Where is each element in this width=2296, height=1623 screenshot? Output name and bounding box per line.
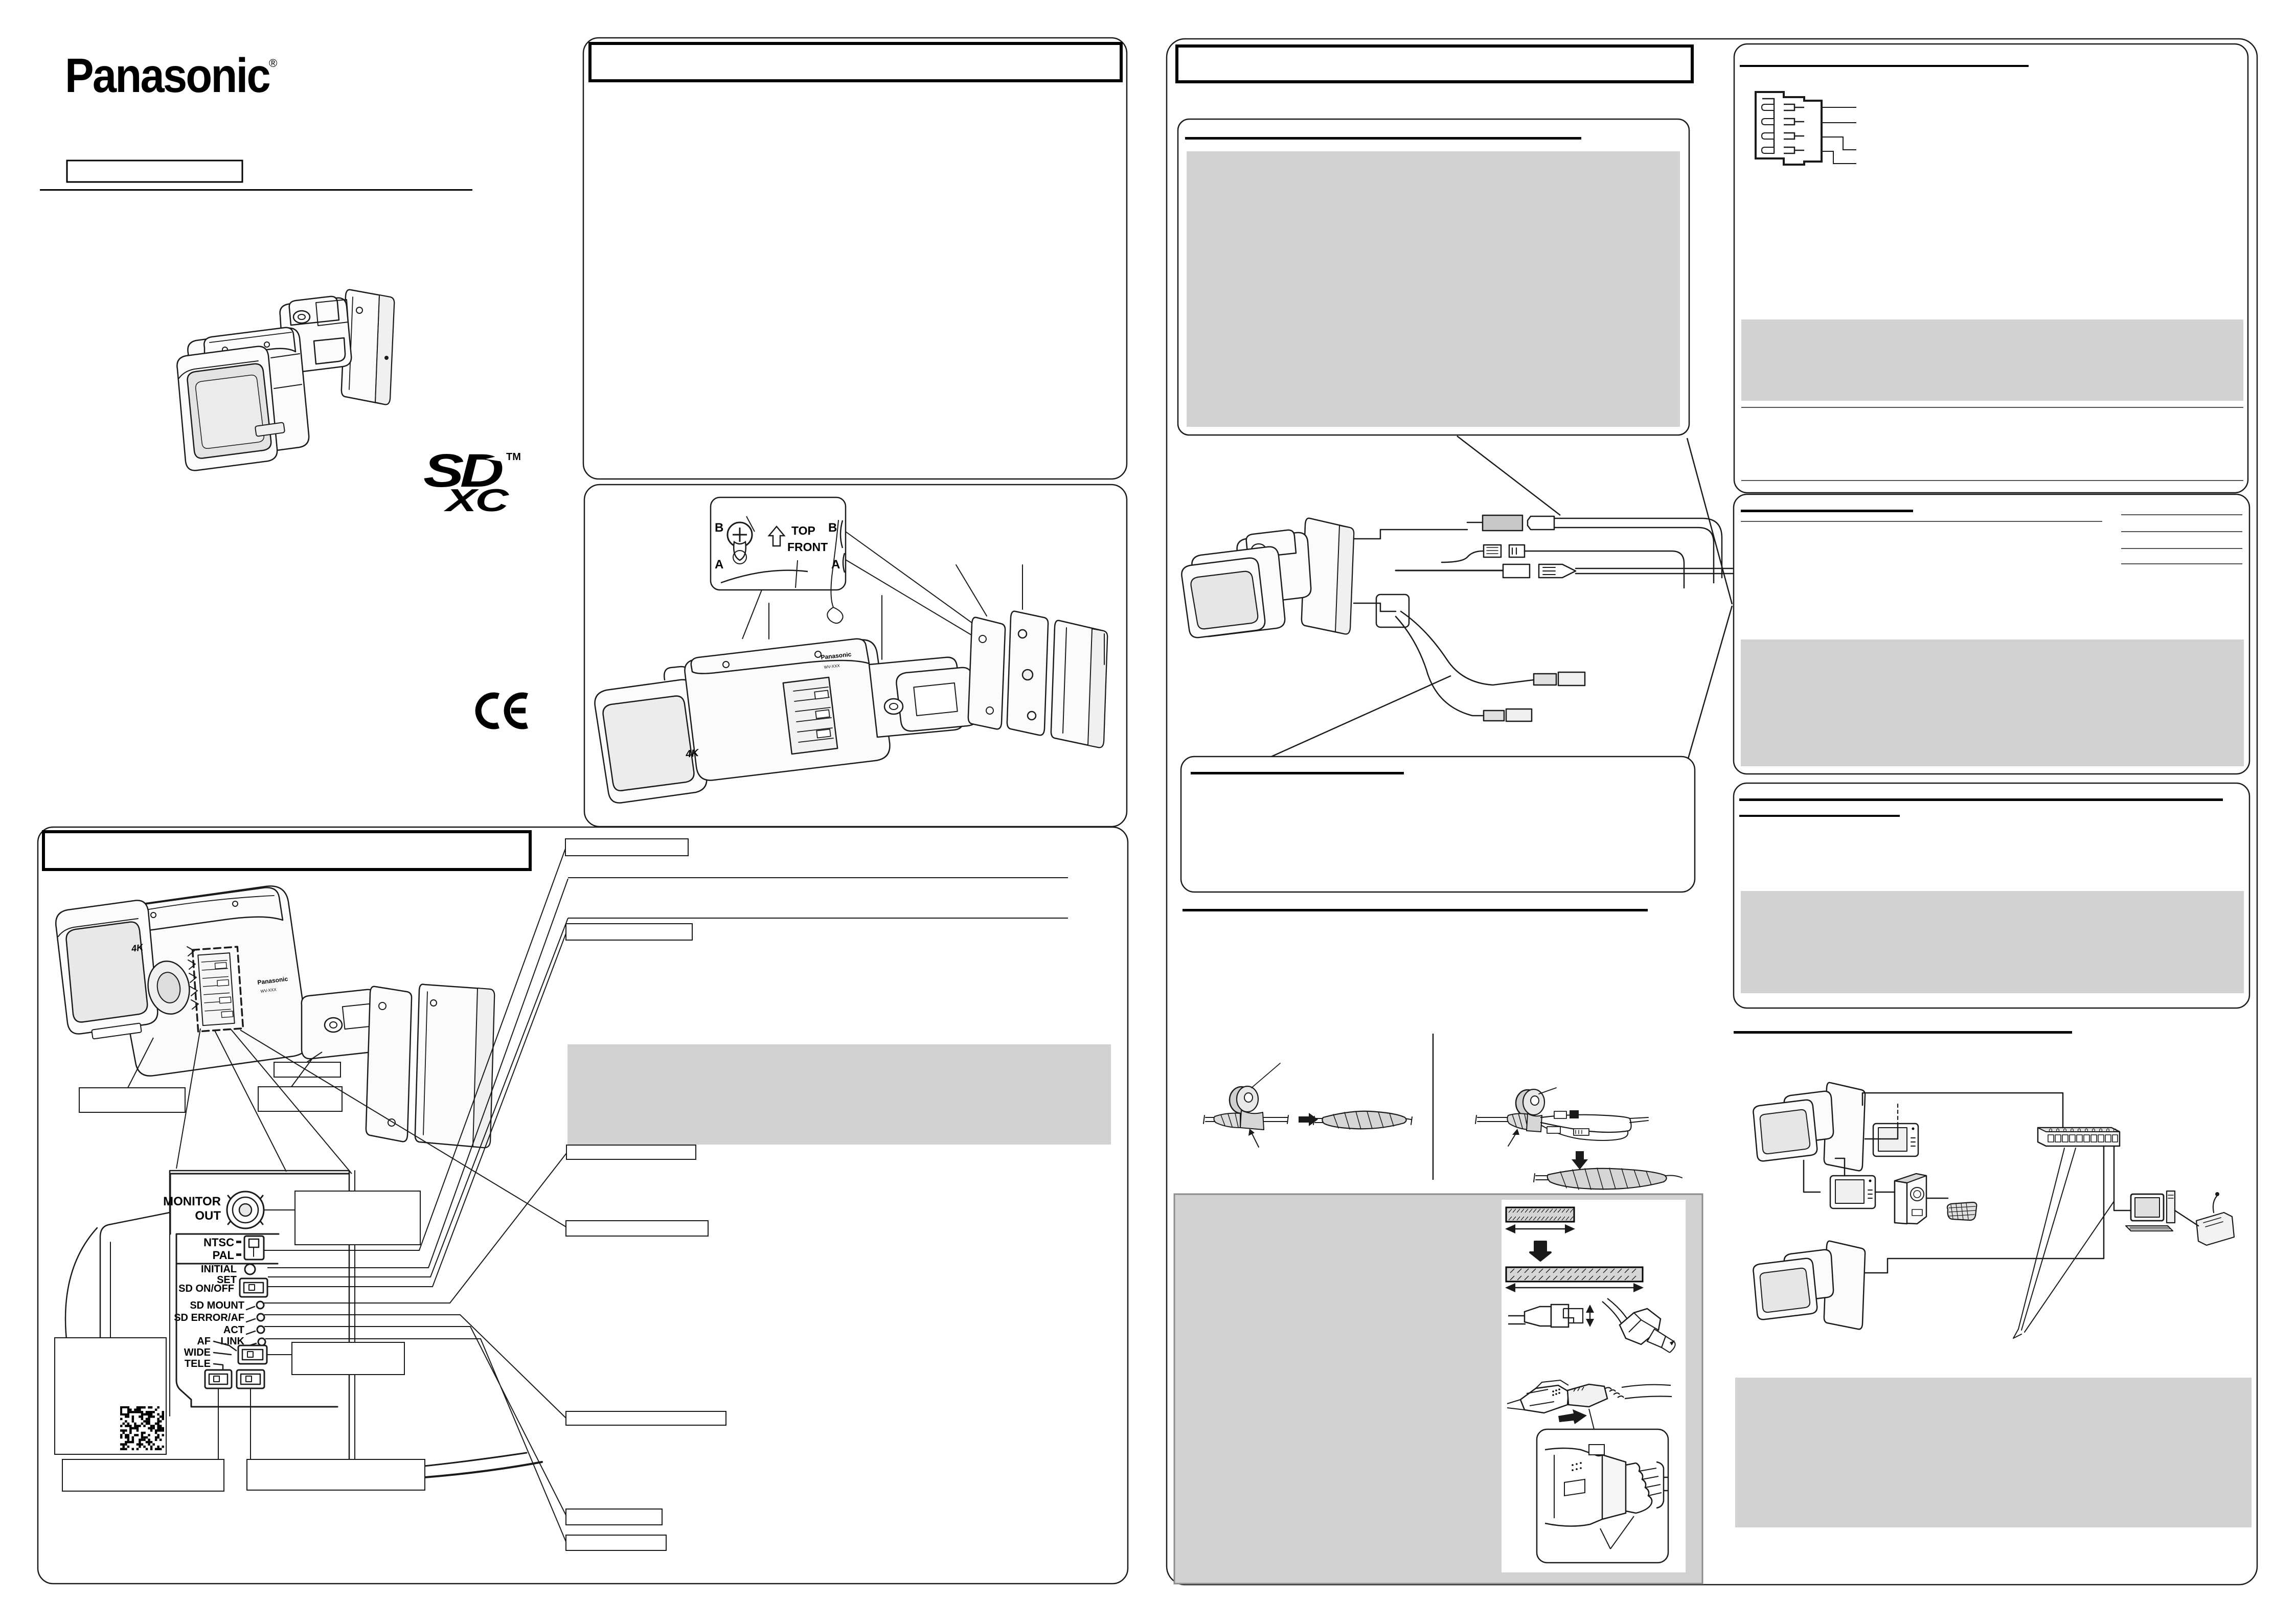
svg-text:B: B — [828, 521, 837, 535]
svg-text:XC: XC — [444, 483, 510, 518]
svg-text:MONITOR: MONITOR — [163, 1195, 221, 1208]
svg-text:INITIAL: INITIAL — [201, 1264, 237, 1275]
svg-text:TELE: TELE — [185, 1358, 211, 1369]
svg-text:AF: AF — [197, 1336, 211, 1347]
svg-text:WIDE: WIDE — [184, 1347, 211, 1358]
svg-text:FRONT: FRONT — [787, 540, 828, 554]
svg-text:®: ® — [269, 57, 277, 70]
svg-text:Panasonic: Panasonic — [65, 49, 270, 103]
svg-text:B: B — [715, 521, 723, 535]
svg-text:NTSC: NTSC — [203, 1236, 234, 1249]
svg-text:A: A — [715, 558, 723, 572]
svg-text:ACT: ACT — [223, 1324, 244, 1336]
svg-text:TM: TM — [506, 451, 521, 463]
svg-text:PAL: PAL — [213, 1249, 234, 1262]
svg-text:TOP: TOP — [791, 524, 815, 537]
svg-text:OUT: OUT — [195, 1209, 221, 1223]
svg-text:SD ERROR/AF: SD ERROR/AF — [174, 1312, 244, 1323]
svg-text:4K: 4K — [685, 747, 700, 760]
svg-text:SD MOUNT: SD MOUNT — [190, 1300, 244, 1311]
svg-text:SD ON/OFF: SD ON/OFF — [178, 1283, 234, 1294]
